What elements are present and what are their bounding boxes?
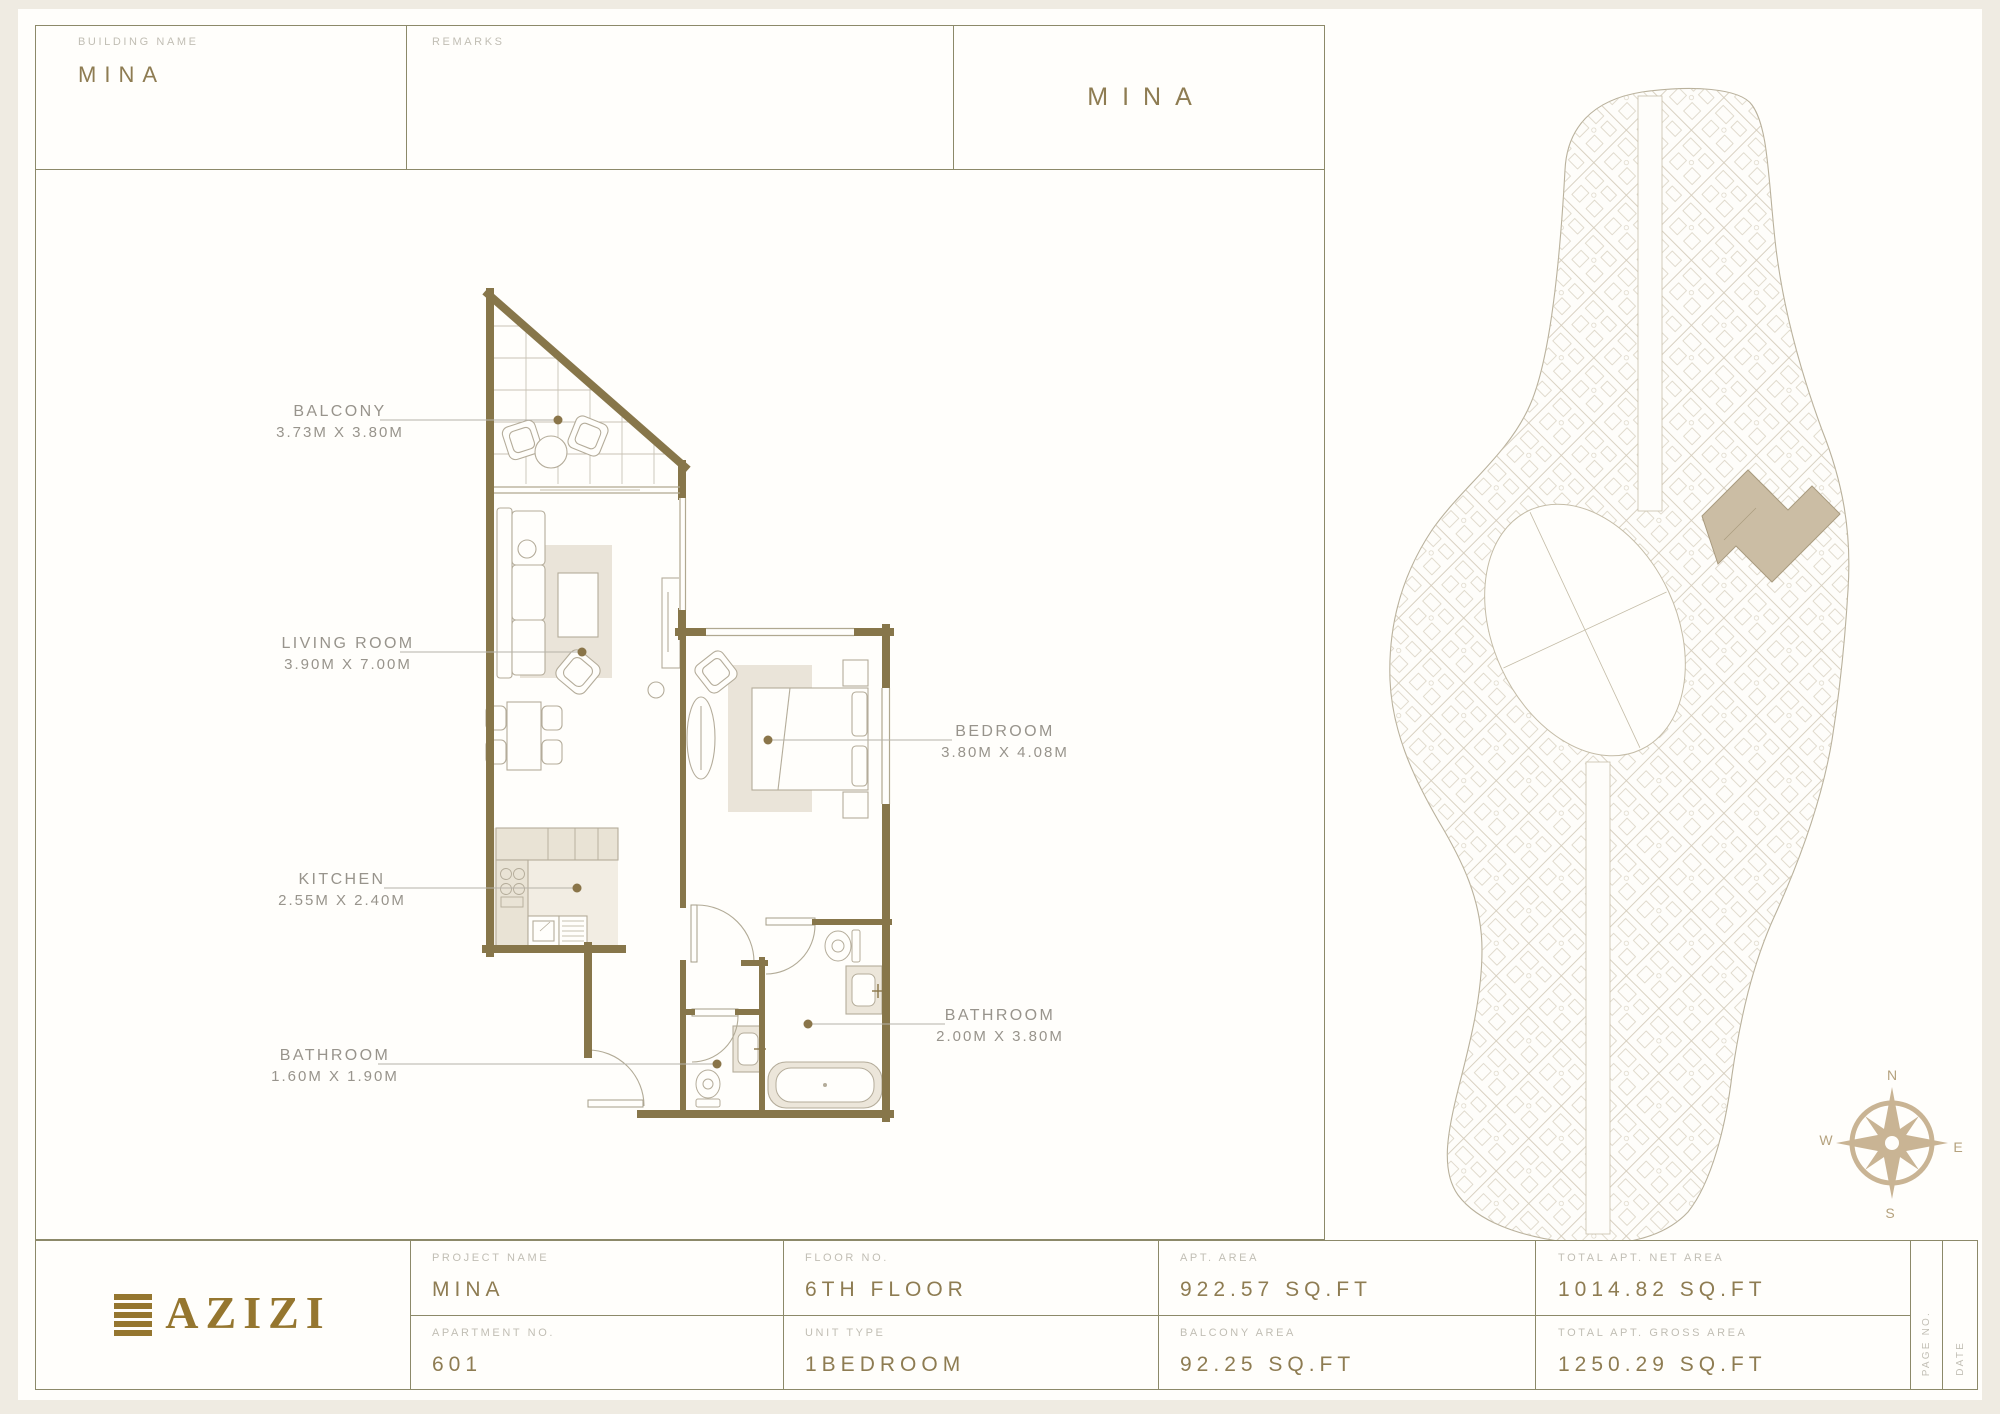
project-name-label: PROJECT NAME — [432, 1252, 549, 1264]
compass-n: N — [1887, 1067, 1897, 1083]
sheet-frame — [35, 25, 1325, 1240]
date-cell: DATE — [1942, 1240, 1978, 1390]
building-name-label: BUILDING NAME — [78, 36, 199, 48]
title-block-row-divider — [410, 1315, 1910, 1316]
compass-s: S — [1885, 1205, 1894, 1221]
compass-w: W — [1819, 1132, 1833, 1148]
balcony-area-value: 92.25 SQ.FT — [1180, 1353, 1355, 1377]
azizi-logo-text: AZIZI — [165, 1290, 330, 1336]
floor-no-value: 6TH FLOOR — [805, 1278, 968, 1302]
azizi-logo: AZIZI — [35, 1240, 410, 1390]
floor-no-label: FLOOR NO. — [805, 1252, 889, 1264]
building-name-value: MINA — [78, 62, 165, 88]
page-no-cell: PAGE NO. — [1910, 1240, 1942, 1390]
azizi-logo-bars-icon — [114, 1294, 152, 1336]
apt-area-value: 922.57 SQ.FT — [1180, 1278, 1372, 1302]
total-gross-area-value: 1250.29 SQ.FT — [1558, 1353, 1767, 1377]
page-no-label: PAGE NO. — [1921, 1311, 1932, 1376]
total-gross-area-label: TOTAL APT. GROSS AREA — [1558, 1327, 1748, 1339]
apt-area-label: APT. AREA — [1180, 1252, 1259, 1264]
remarks-label: REMARKS — [432, 36, 505, 48]
unit-type-label: UNIT TYPE — [805, 1327, 885, 1339]
compass-rose: N E S W — [1819, 1067, 1962, 1221]
date-label: DATE — [1955, 1341, 1966, 1376]
total-net-area-value: 1014.82 SQ.FT — [1558, 1278, 1767, 1302]
site-plan — [1380, 80, 1860, 1260]
project-name-value: MINA — [432, 1278, 505, 1302]
apartment-no-label: APARTMENT NO. — [432, 1327, 555, 1339]
total-net-area-label: TOTAL APT. NET AREA — [1558, 1252, 1724, 1264]
balcony-area-label: BALCONY AREA — [1180, 1327, 1296, 1339]
compass-e: E — [1953, 1139, 1962, 1155]
unit-type-value: 1BEDROOM — [805, 1353, 965, 1377]
apartment-no-value: 601 — [432, 1353, 482, 1377]
sheet-title: MINA — [954, 25, 1325, 170]
